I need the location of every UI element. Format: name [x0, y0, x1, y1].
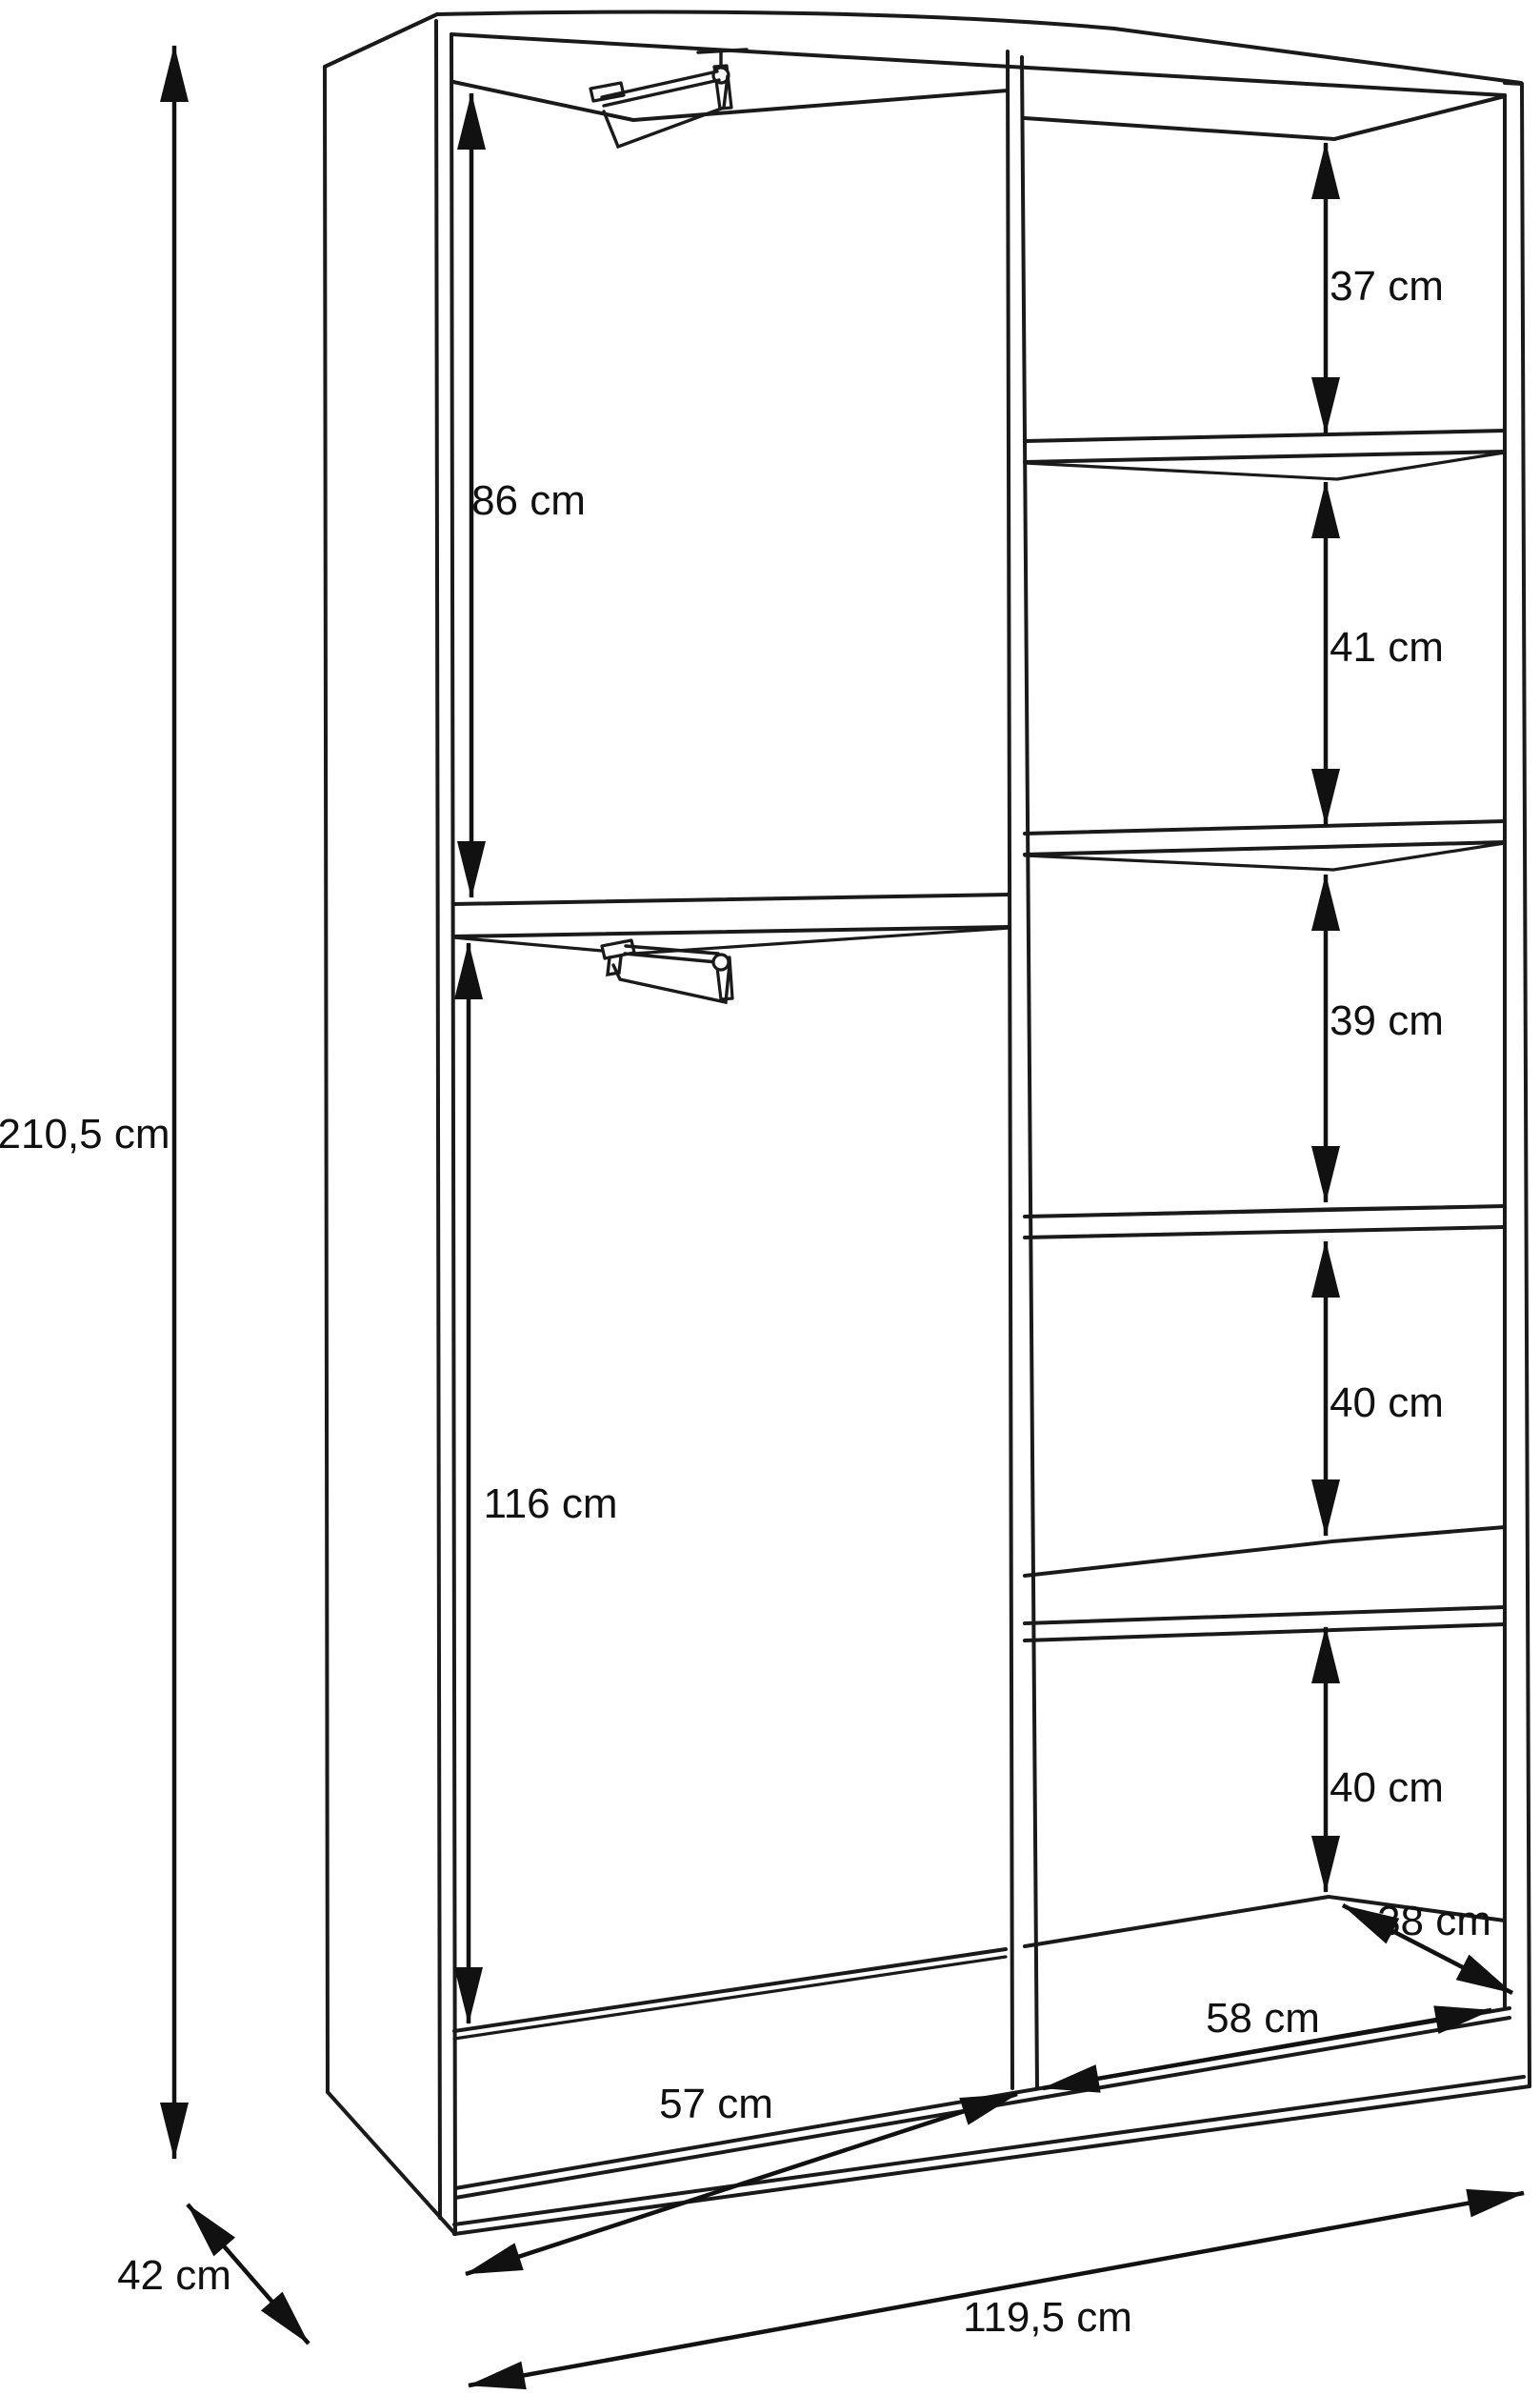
rail2-arm-bottom-icon [625, 954, 717, 962]
left-panel-outer-edge [325, 67, 328, 2092]
label-interior-depth: 38 cm [1377, 1898, 1491, 1944]
right-ceiling-back-edge [1025, 96, 1505, 139]
label-compartment-1: 37 cm [1330, 263, 1444, 310]
shelf3-top-edge [1025, 1206, 1505, 1217]
right-panel-top-cap [1505, 83, 1522, 84]
left-section-interior [453, 82, 1010, 2039]
left-middle-shelf-front-top [453, 895, 1010, 904]
divider-left-line [1008, 51, 1012, 2088]
label-compartment-3: 39 cm [1330, 997, 1444, 1044]
left-panel-top-edge [325, 14, 437, 67]
dimension-labels: 210,5 cm 86 cm 116 cm 37 cm 41 cm 39 cm … [0, 263, 1491, 2341]
label-overall-depth: 42 cm [117, 2252, 231, 2299]
right-panel-outer-edge [1522, 84, 1530, 2086]
left-floor-back-edge-2 [454, 1957, 1006, 2039]
label-compartment-4: 40 cm [1330, 1379, 1444, 1426]
label-compartment-5: 40 cm [1330, 1764, 1444, 1811]
top-panel-back-edge [437, 12, 1521, 83]
label-left-width: 57 cm [659, 2081, 773, 2127]
rail2-hanger-bar-icon [613, 964, 730, 1002]
label-overall-width: 119,5 cm [963, 2294, 1132, 2341]
shelf2-front-top [1025, 821, 1505, 834]
divider-right-line [1022, 57, 1037, 2088]
label-right-width: 58 cm [1206, 1995, 1320, 2042]
shelf1-front-top [1025, 431, 1505, 441]
shelf4-back-edge [1025, 1527, 1505, 1576]
label-overall-height: 210,5 cm [0, 1111, 170, 1157]
label-left-upper-compartment: 86 cm [471, 477, 586, 524]
pull-down-rail-upper [590, 50, 747, 147]
shelf3-front-bottom [1025, 1227, 1505, 1238]
shelf4-front-top [1025, 1607, 1505, 1623]
left-floor-back-edge-1 [454, 1949, 1006, 2031]
dimension-arrows [174, 46, 1524, 2385]
label-compartment-2: 41 cm [1330, 624, 1444, 671]
rail2-pivot-hinge-icon [713, 955, 729, 970]
left-panel-front-edge-back-line [436, 21, 440, 2218]
left-panel-front-edge-front-line [451, 34, 455, 2234]
wardrobe-technical-drawing: 210,5 cm 86 cm 116 cm 37 cm 41 cm 39 cm … [0, 0, 1540, 2395]
bottom-panel-front-edge-bottom [455, 2018, 1510, 2198]
shelf2-front-bottom [1025, 842, 1505, 855]
shelf4-front-bottom [1025, 1624, 1505, 1640]
left-panel-bottom-edge [328, 2092, 455, 2234]
label-left-lower-compartment: 116 cm [483, 1480, 617, 1527]
shelf1-front-bottom [1025, 452, 1505, 462]
